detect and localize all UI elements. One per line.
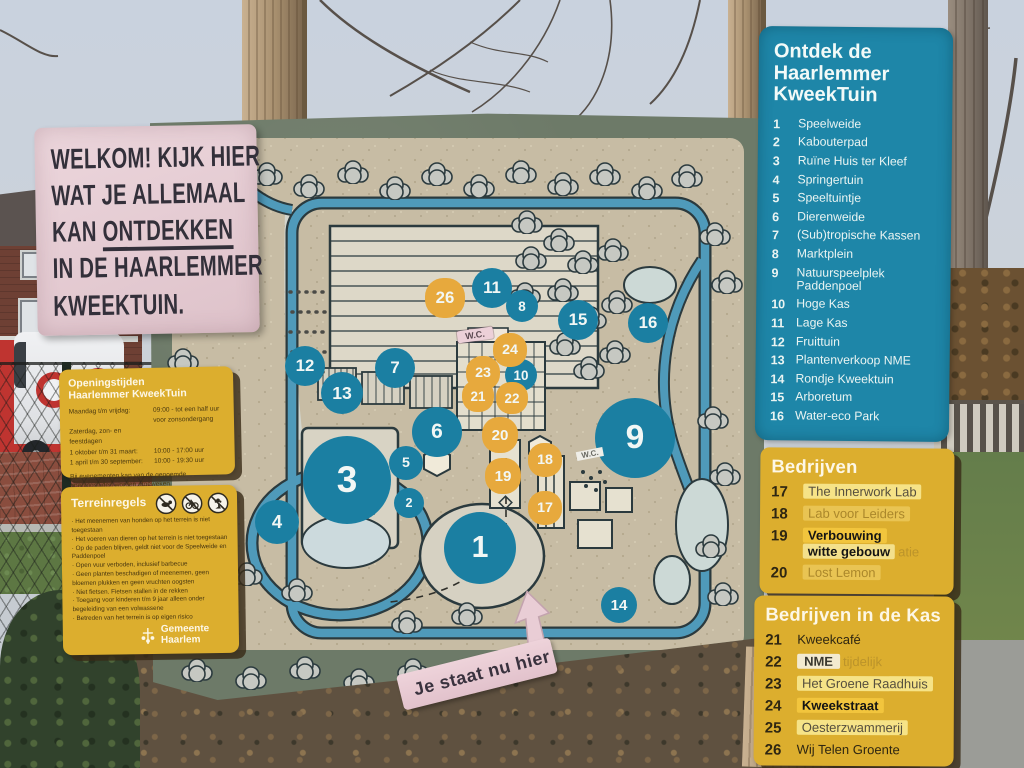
bedrijven-item-label: Lost Lemon [803, 564, 881, 580]
map-marker: 15 [558, 300, 598, 340]
map-marker: 7 [375, 348, 415, 388]
marker-number: 2 [405, 496, 412, 510]
terrain-rule: Het meenemen van honden op het terrein i… [71, 516, 227, 536]
marker-number: 24 [502, 342, 518, 358]
legend-title: Ontdek de Haarlemmer KweekTuin [773, 41, 941, 108]
scene-photo-park-sign: 1234567891011121314151617181920212223242… [0, 0, 1024, 768]
welcome-text: WELKOM! KIJK HIER WAT JE ALLEMAAL KAN ON… [50, 139, 233, 325]
bedrijven-item: 20 Lost Lemon [771, 564, 943, 583]
bedrijven-item-label: Verbouwing [803, 528, 887, 544]
legend-item-label: Ruïne Huis ter Kleef [798, 154, 907, 169]
kas-title: Bedrijven in de Kas [765, 604, 943, 627]
legend-item: 5 Speeltuintje [772, 191, 939, 207]
kas-item-label: NME [797, 654, 840, 669]
marker-number: 16 [639, 313, 658, 333]
legend-item-label: Marktplein [797, 247, 853, 262]
kas-item: 24 Kweekstraat [765, 698, 943, 717]
marker-number: 8 [518, 299, 525, 314]
gemeente-haarlem-text: Gemeente Haarlem [161, 624, 227, 646]
legend-item-number: 3 [773, 154, 798, 168]
kas-item: 26 Wij Telen Groente [765, 742, 943, 761]
legend-item-label: Lage Kas [796, 316, 848, 331]
legend-item: 11 Lage Kas [771, 316, 938, 332]
legend-item: 9 Natuurspeelplek Paddenpoel [771, 266, 938, 295]
terrain-rules-list: Het meenemen van honden op het terrein i… [71, 516, 228, 624]
legend-item-label: Hoge Kas [796, 298, 850, 313]
legend-item-label: Arboretum [795, 391, 852, 406]
legend-item: 12 Fruittuin [771, 335, 938, 351]
legend-panel: Ontdek de Haarlemmer KweekTuin 1 Speelwe… [755, 26, 953, 442]
haarlem-emblem-icon [140, 626, 156, 644]
opening-hours-row: 1 april t/m 30 september:10:00 - 19:30 u… [70, 455, 226, 468]
map-marker: 2 [394, 488, 424, 518]
bedrijven-panel: Bedrijven 17 The Innerwork Lab 18 Lab vo… [759, 447, 954, 594]
map-marker: 23 [466, 356, 500, 390]
legend-item: 4 Springertuin [772, 173, 939, 189]
legend-list: 1 Speelweide 2 Kabouterpad 3 Ruïne Huis … [770, 117, 940, 425]
kas-panel: Bedrijven in de Kas 21 Kweekcafé 22 NMEt… [754, 595, 955, 766]
opening-hours-panel: Openingstijden Haarlemmer KweekTuin Maan… [59, 366, 235, 478]
bedrijven-item-label: Lab voor Leiders [803, 506, 910, 522]
marker-number: 12 [296, 356, 315, 376]
kas-item-label: Het Groene Raadhuis [797, 676, 933, 692]
bedrijven-item-number: 19 [771, 527, 803, 544]
bedrijven-item-number: 18 [771, 505, 803, 522]
map-marker: 12 [285, 346, 325, 386]
kas-item-label: Wij Telen Groente [797, 742, 900, 758]
kas-item: 23 Het Groene Raadhuis [765, 676, 943, 695]
legend-item-number: 4 [772, 173, 797, 187]
kas-item: 25 Oesterzwammerij [765, 720, 943, 739]
legend-item-label: Water-eco Park [795, 409, 879, 424]
bedrijven-title: Bedrijven [771, 455, 943, 478]
legend-item: 14 Rondje Kweektuin [770, 372, 937, 388]
legend-item-number: 15 [770, 391, 795, 405]
marker-number: 21 [471, 389, 486, 404]
marker-number: 5 [402, 455, 410, 471]
bedrijven-item-number: 20 [771, 564, 803, 581]
marker-number: 9 [626, 419, 645, 457]
legend-item-number: 1 [773, 117, 798, 131]
welcome-sign: WELKOM! KIJK HIER WAT JE ALLEMAAL KAN ON… [34, 124, 260, 336]
map-marker: 14 [601, 587, 637, 623]
marker-number: 19 [495, 468, 512, 485]
legend-item-number: 14 [770, 372, 795, 386]
map-marker: 5 [389, 446, 423, 480]
bedrijven-item-label2: witte gebouw [803, 544, 895, 560]
legend-item-label: Speeltuintje [797, 192, 861, 207]
legend-item-label: Dierenweide [797, 210, 865, 225]
legend-item-number: 8 [772, 247, 797, 261]
legend-item: 15 Arboretum [770, 391, 937, 407]
legend-item: 8 Marktplein [772, 247, 939, 263]
terrain-rule: Op de paden blijven, geldt niet voor de … [72, 543, 228, 563]
bedrijven-list: 17 The Innerwork Lab 18 Lab voor Leiders… [771, 483, 944, 583]
legend-item: 7 (Sub)tropische Kassen [772, 228, 939, 244]
legend-item: 1 Speelweide [773, 117, 940, 133]
no-dogs-icon [155, 493, 177, 515]
marker-number: 10 [514, 368, 529, 383]
bedrijven-item: 18 Lab voor Leiders [771, 505, 943, 524]
legend-item-number: 2 [773, 136, 798, 150]
legend-item: 16 Water-eco Park [770, 409, 937, 425]
legend-item-label: Plantenverkoop NME [796, 354, 911, 369]
marker-number: 3 [337, 459, 358, 501]
legend-item-number: 13 [771, 353, 796, 367]
legend-item-number: 6 [772, 210, 797, 224]
marker-number: 23 [475, 365, 491, 381]
legend-item-label: (Sub)tropische Kassen [797, 229, 920, 244]
ghost-text: atie [895, 545, 919, 560]
marker-number: 1 [472, 531, 489, 565]
kas-item-number: 25 [765, 720, 797, 737]
map-marker: 11 [472, 268, 512, 308]
bedrijven-item: 19 Verbouwing witte gebouwatie [771, 527, 943, 561]
map-marker: 22 [496, 382, 528, 414]
legend-item-label: Fruittuin [796, 335, 840, 349]
opening-hours-rows: Maandag t/m vrijdag:09:00 - tot een half… [69, 404, 226, 469]
opening-hours-title: Openingstijden Haarlemmer KweekTuin [68, 374, 224, 402]
map-marker: 4 [255, 500, 299, 544]
map-marker: 26 [425, 278, 465, 318]
terrain-rules-panel: Terreinregels Het meenem [61, 485, 239, 655]
kas-list: 21 Kweekcafé 22 NMEtijdelijk 23 Het Groe… [765, 632, 944, 761]
kas-item-number: 24 [765, 698, 797, 715]
legend-item-number: 12 [771, 335, 796, 349]
kas-item: 21 Kweekcafé [765, 632, 943, 651]
kas-item-label: Kweekcafé [797, 632, 861, 647]
kas-item-number: 23 [765, 676, 797, 693]
marker-number: 11 [483, 278, 501, 298]
legend-item-number: 11 [771, 316, 796, 330]
legend-item-label: Natuurspeelplek Paddenpoel [796, 266, 938, 295]
marker-number: 18 [537, 452, 553, 468]
legend-item: 2 Kabouterpad [773, 136, 940, 152]
marker-number: 4 [272, 511, 282, 533]
map-marker: 1 [444, 512, 516, 584]
marker-number: 6 [431, 420, 443, 444]
legend-item-number: 16 [770, 409, 795, 423]
marker-number: 20 [492, 427, 509, 444]
terrain-rule: Geen planten beschadigen of meenemen, ge… [72, 569, 228, 589]
ghost-text: tijdelijk [840, 654, 882, 669]
map-marker: 16 [628, 303, 668, 343]
map-marker: 3 [303, 436, 391, 524]
gemeente-haarlem-logo: Gemeente Haarlem [140, 624, 227, 646]
legend-item-number: 7 [772, 228, 797, 242]
bedrijven-item-label: The Innerwork Lab [803, 484, 922, 500]
map-marker: 17 [528, 491, 562, 525]
map-marker: 20 [482, 417, 518, 453]
marker-number: 26 [436, 288, 455, 308]
map-marker: 9 [595, 398, 675, 478]
map-marker: 24 [493, 333, 527, 367]
legend-item-number: 5 [772, 191, 797, 205]
no-picking-icon [207, 492, 229, 514]
map-marker: 19 [485, 458, 521, 494]
marker-number: 15 [569, 310, 588, 330]
prohibition-icons [155, 492, 229, 515]
bedrijven-item: 17 The Innerwork Lab [771, 483, 943, 502]
legend-item: 13 Plantenverkoop NME [771, 353, 938, 369]
map-marker: 13 [321, 372, 363, 414]
legend-item: 3 Ruïne Huis ter Kleef [773, 154, 940, 170]
marker-number: 13 [332, 383, 352, 404]
legend-item: 6 Dierenweide [772, 210, 939, 226]
legend-item-number: 9 [771, 266, 796, 294]
kas-item-label: Kweekstraat [797, 698, 884, 713]
marker-number: 7 [390, 358, 399, 378]
wooden-post [242, 0, 307, 135]
terrain-rule: Toegang voor kinderen t/m 9 jaar alleen … [72, 595, 228, 615]
legend-item-label: Springertuin [797, 173, 863, 188]
map-marker: 18 [528, 443, 562, 477]
kas-item-number: 21 [765, 632, 797, 649]
no-cycling-icon [181, 492, 203, 514]
marker-number: 17 [537, 500, 553, 516]
legend-item-label: Rondje Kweektuin [795, 372, 893, 387]
marker-number: 22 [505, 391, 520, 406]
legend-item-label: Speelweide [798, 117, 861, 132]
bedrijven-item-number: 17 [771, 483, 803, 500]
kas-item-number: 26 [765, 742, 797, 759]
kas-item-number: 22 [765, 654, 797, 671]
legend-item-label: Kabouterpad [798, 136, 868, 151]
legend-item: 10 Hoge Kas [771, 298, 938, 314]
marker-number: 14 [611, 597, 628, 614]
kas-item-label: Oesterzwammerij [797, 720, 908, 736]
map-marker: 6 [412, 407, 462, 457]
legend-item-number: 10 [771, 298, 796, 312]
kas-item: 22 NMEtijdelijk [765, 654, 943, 673]
